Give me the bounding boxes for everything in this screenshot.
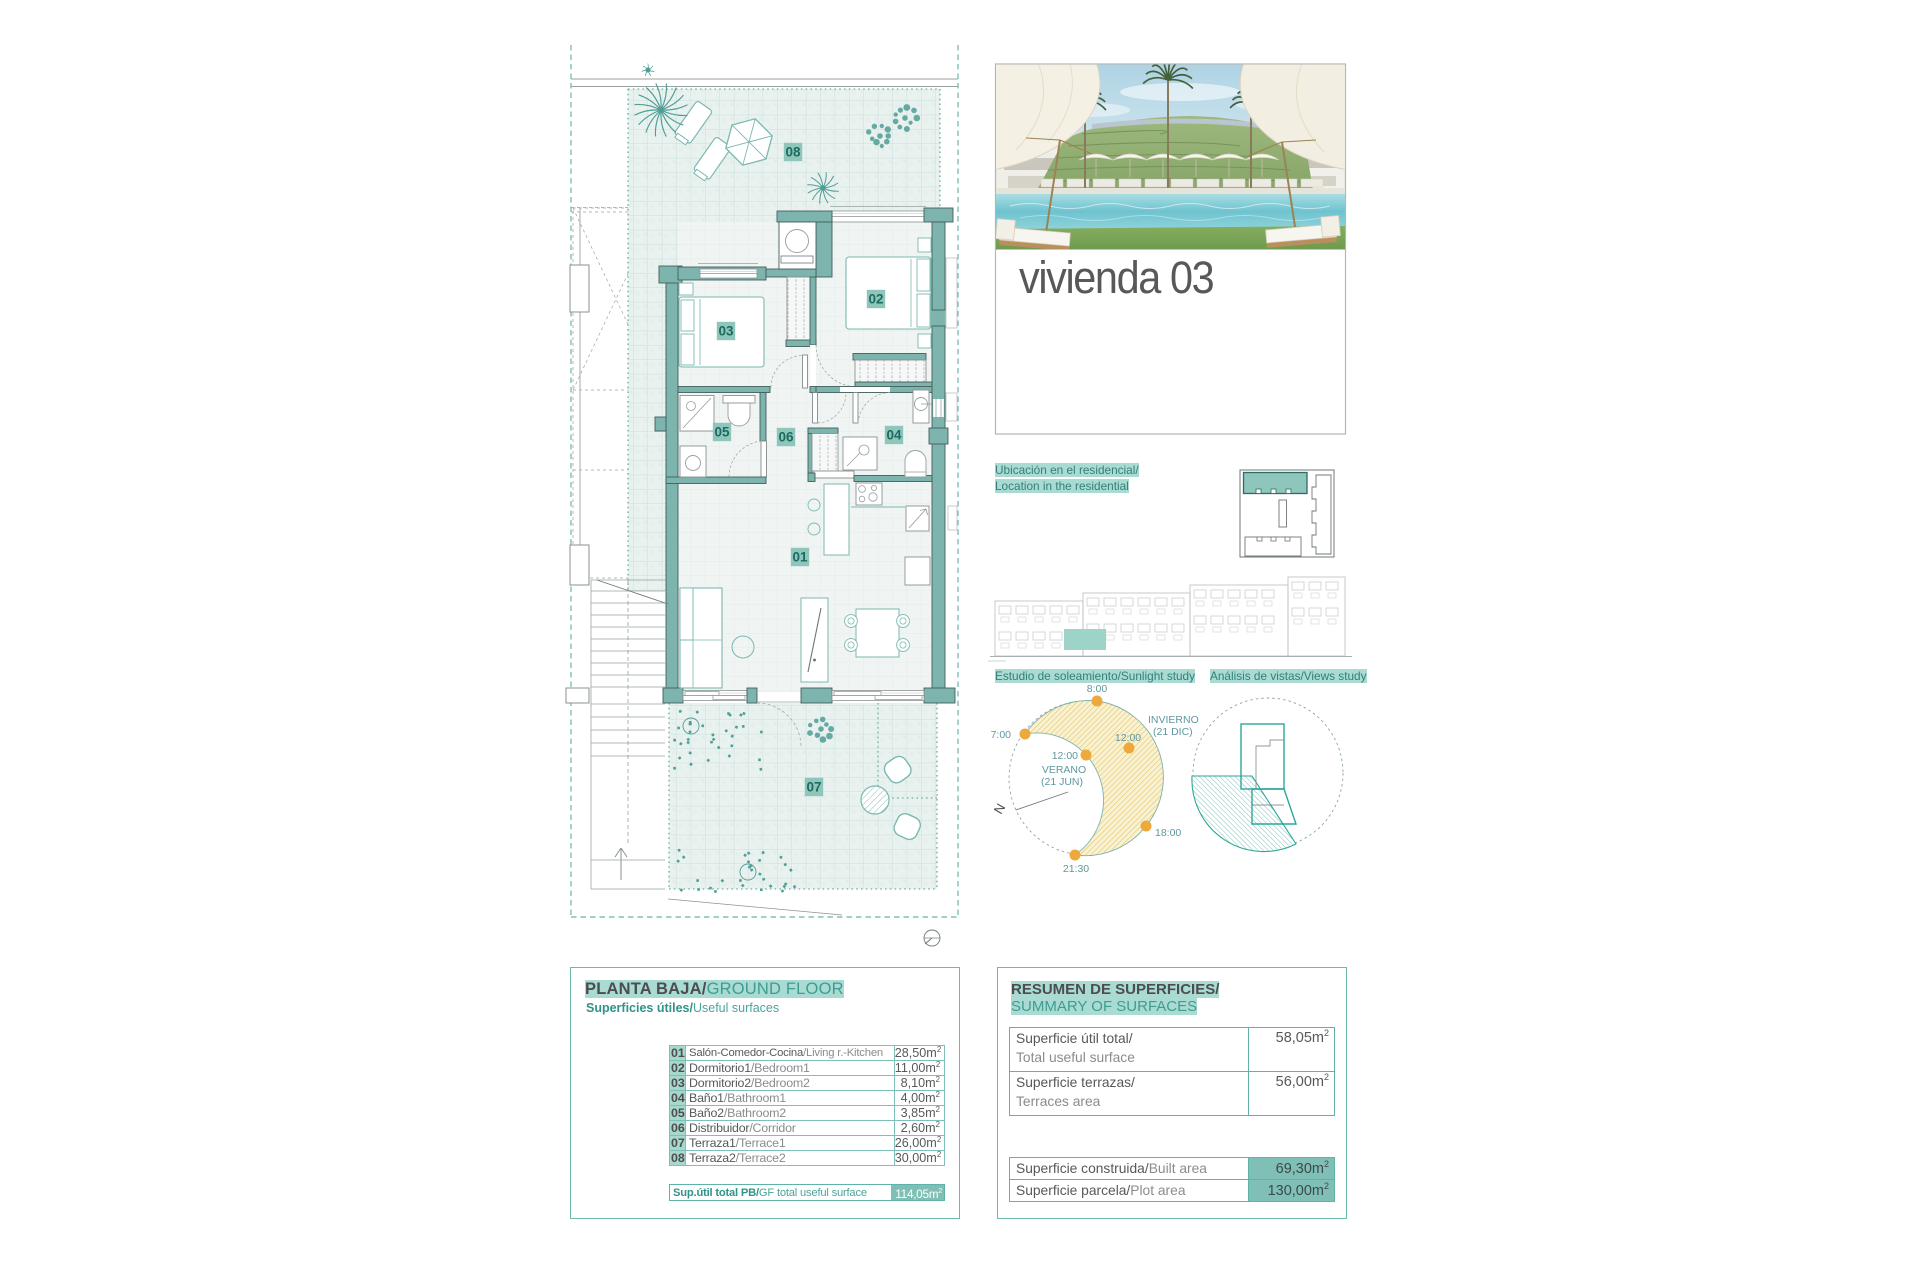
svg-text:(21 DIC): (21 DIC) bbox=[1153, 726, 1193, 738]
svg-text:12:00: 12:00 bbox=[1115, 732, 1141, 744]
svg-text:N: N bbox=[991, 801, 1009, 817]
svg-text:18:00: 18:00 bbox=[1155, 827, 1181, 839]
svg-text:04: 04 bbox=[886, 428, 902, 443]
svg-text:07: 07 bbox=[806, 780, 821, 795]
svg-text:01: 01 bbox=[792, 550, 808, 565]
svg-text:(21 JUN): (21 JUN) bbox=[1041, 776, 1083, 788]
svg-text:12:00: 12:00 bbox=[1052, 750, 1078, 762]
svg-text:02: 02 bbox=[868, 292, 883, 307]
svg-text:INVIERNO: INVIERNO bbox=[1148, 714, 1199, 726]
svg-text:03: 03 bbox=[718, 324, 734, 339]
svg-text:06: 06 bbox=[778, 430, 794, 445]
svg-text:7:00: 7:00 bbox=[991, 729, 1012, 741]
svg-text:8:00: 8:00 bbox=[1087, 683, 1108, 695]
svg-text:21:30: 21:30 bbox=[1063, 863, 1089, 875]
svg-text:05: 05 bbox=[714, 425, 730, 440]
svg-text:VERANO: VERANO bbox=[1042, 764, 1086, 776]
svg-text:08: 08 bbox=[785, 145, 801, 160]
